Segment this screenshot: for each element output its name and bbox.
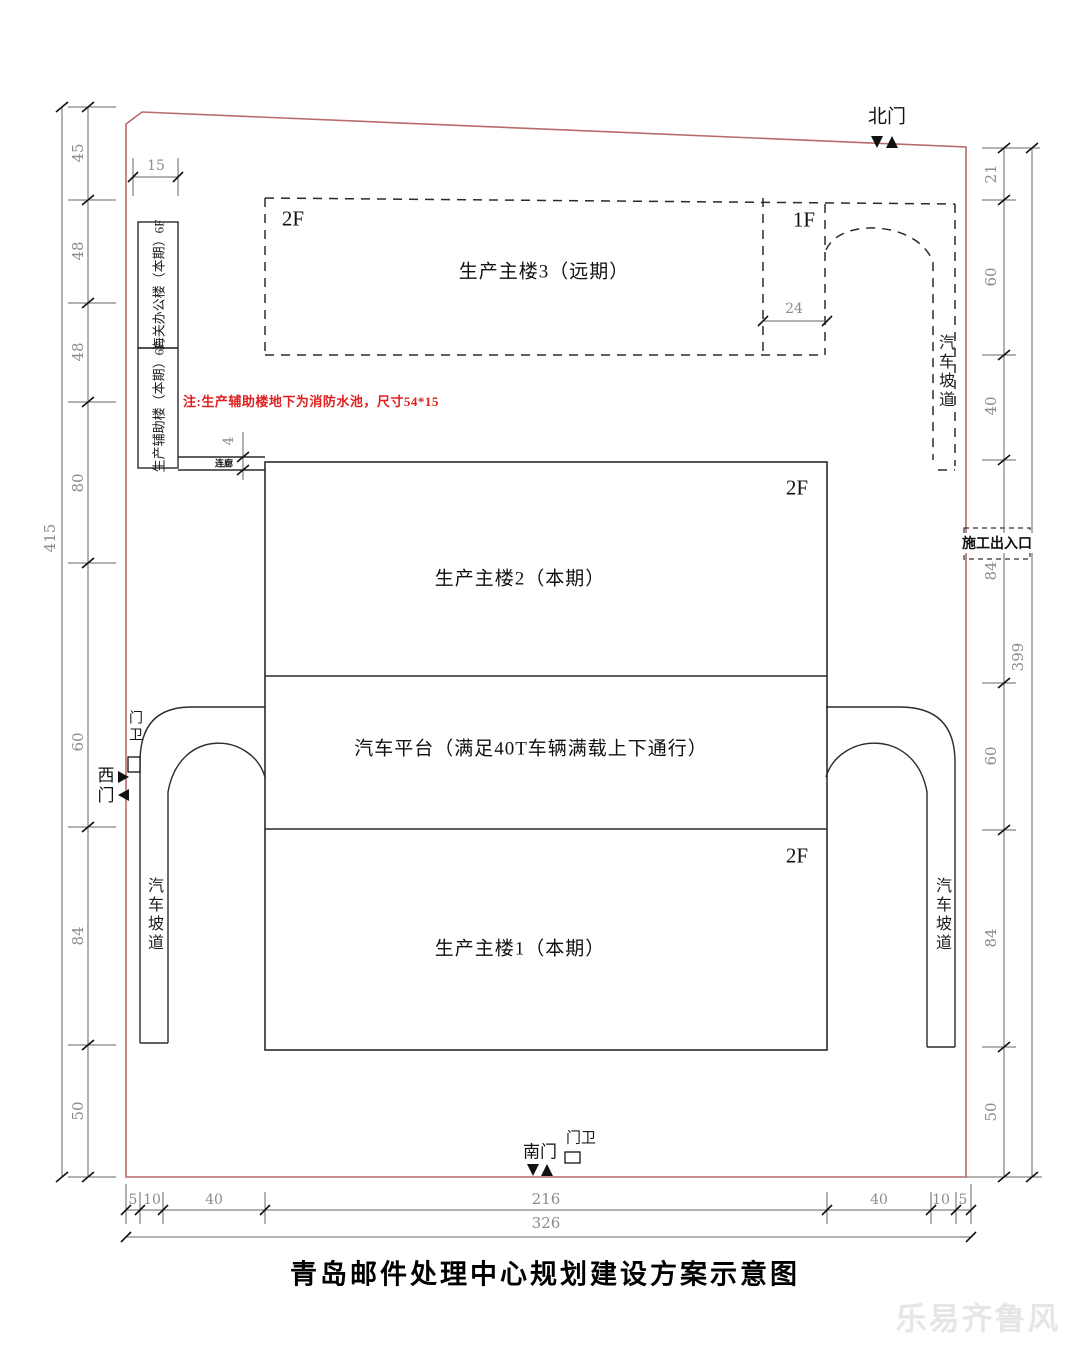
dim-left-84: 84: [69, 926, 87, 945]
aux-building-label: 生产辅助楼（本期）6F: [149, 342, 168, 473]
site-plan-drawing: 生产主楼3（远期） 2F 1F 生产主楼2（本期） 2F 汽车平台（满足40T车…: [0, 0, 1080, 1350]
south-guard-label: 门卫: [566, 1127, 596, 1148]
dim-bottom-5a: 5: [129, 1192, 138, 1208]
dim-left-48b: 48: [69, 342, 87, 361]
platform-label: 汽车平台（满足40T车辆满载上下通行）: [354, 734, 708, 761]
left-dim-lines: [62, 107, 116, 1177]
main1-label: 生产主楼1（本期）: [435, 934, 606, 961]
dim-left-45: 45: [69, 143, 87, 162]
corridor-label: 连廊: [215, 457, 233, 470]
south-gate-label: 南门: [523, 1138, 557, 1163]
dim-bottom-216: 216: [532, 1190, 561, 1208]
dim-bottom-40a: 40: [205, 1192, 223, 1208]
main2-label: 生产主楼2（本期）: [435, 564, 606, 591]
west-gate-marker: [118, 771, 129, 801]
dim-right-50: 50: [982, 1102, 1000, 1121]
dim-right-84a: 84: [982, 561, 1000, 580]
dim-right-60b: 60: [982, 746, 1000, 765]
dim-top-left-15: 15: [147, 158, 165, 174]
dim-right-84b: 84: [982, 928, 1000, 947]
main3-label: 生产主楼3（远期）: [459, 257, 630, 284]
dim-left-48a: 48: [69, 241, 87, 260]
dim-left-total: 415: [41, 524, 59, 553]
fire-pool-note: 注:生产辅助楼地下为消防水池，尺寸54*15: [183, 391, 439, 410]
dim-corridor-4: 4: [221, 437, 237, 446]
main2-floor-label: 2F: [786, 476, 808, 501]
dim-bottom-10a: 10: [143, 1192, 161, 1208]
dim-right-21: 21: [982, 164, 1000, 183]
guard-booth-west: [128, 757, 140, 772]
west-guard-label: 门卫: [124, 710, 144, 744]
ramp-northeast-curve: [826, 228, 933, 460]
construction-entrance-label: 施工出入口: [960, 533, 1034, 553]
dim-main3-bay-24: 24: [785, 301, 803, 317]
dim-bottom-total: 326: [532, 1214, 561, 1232]
ramp-northeast-label: 汽车坡道: [932, 334, 956, 410]
north-gate-marker: [871, 136, 898, 148]
main3-floor-label: 2F: [282, 207, 304, 232]
dim-left-50: 50: [69, 1101, 87, 1120]
drawing-title: 青岛邮件处理中心规划建设方案示意图: [290, 1253, 800, 1292]
dim-bottom-10b: 10: [932, 1192, 950, 1208]
main3-dashed-outline: [265, 198, 955, 470]
guard-booth-south: [565, 1152, 580, 1163]
dim-left-80: 80: [69, 473, 87, 492]
ramp-southwest-label: 汽车坡道: [141, 877, 165, 953]
dim-right-40: 40: [982, 396, 1000, 415]
dim-24: [758, 316, 832, 326]
dim-bottom-5b: 5: [959, 1192, 968, 1208]
ramp-southwest: [140, 707, 265, 1043]
main3-right-floor-label: 1F: [793, 208, 815, 233]
dim-bottom-40b: 40: [870, 1192, 888, 1208]
ramp-southeast-label: 汽车坡道: [929, 877, 953, 953]
right-dim-lines: [966, 148, 1042, 1177]
dim-right-60a: 60: [982, 267, 1000, 286]
customs-building-label: 海关办公楼（本期）6F: [149, 220, 168, 351]
dim-left-60: 60: [69, 732, 87, 751]
watermark: 乐易齐鲁风: [896, 1294, 1061, 1339]
dim-4: [237, 432, 249, 480]
west-gate-label: 西门: [92, 766, 117, 806]
dim-right-total: 399: [1009, 643, 1027, 672]
main1-floor-label: 2F: [786, 844, 808, 869]
south-gate-marker: [527, 1164, 553, 1176]
north-gate-label: 北门: [868, 102, 906, 129]
